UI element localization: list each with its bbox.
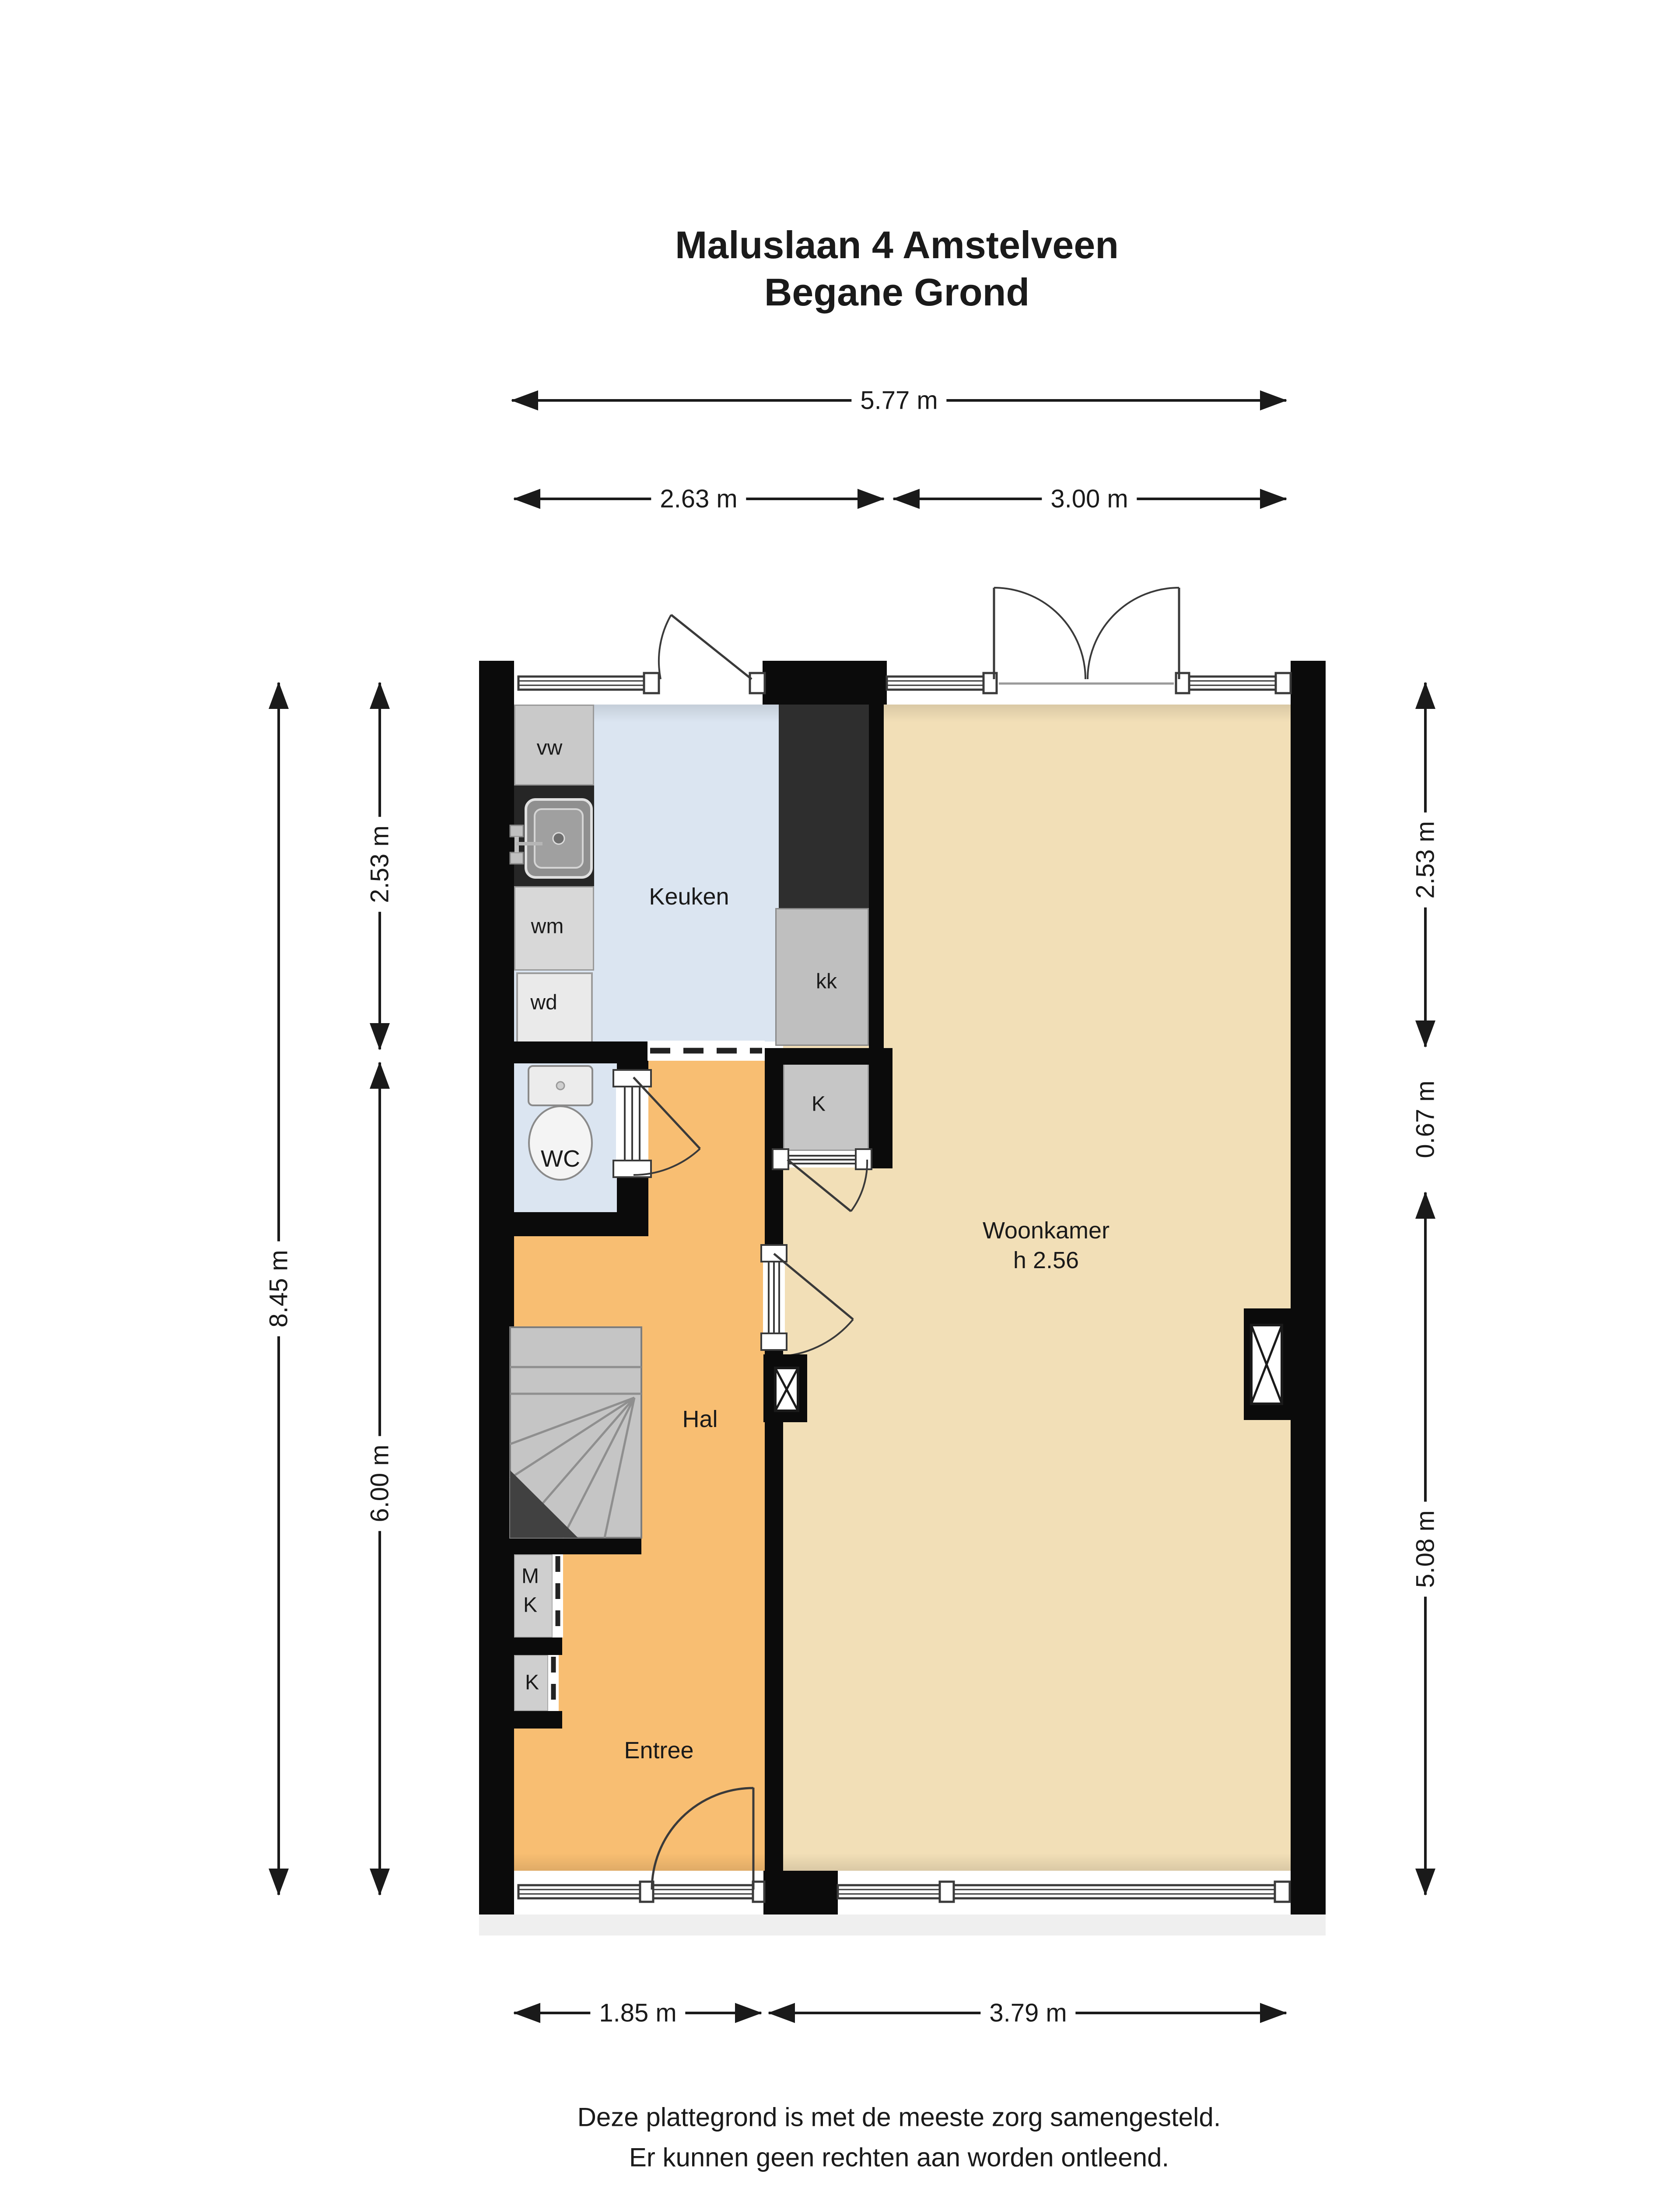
- wall-top-mid-pier: [763, 661, 887, 705]
- chimney-icon-mid: [763, 1354, 807, 1422]
- disclaimer-line1: Deze plattegrond is met de meeste zorg s…: [577, 2102, 1221, 2132]
- french-doors: [994, 588, 1179, 679]
- wall-bottom-mid-pier: [763, 1871, 838, 1914]
- wall-hal-living-a: [765, 1048, 783, 1245]
- dim-bottom-left: 1.85 m: [590, 1998, 685, 2029]
- dim-top-total: 5.77 m: [851, 385, 946, 416]
- floorplan-page: Maluslaan 4 Amstelveen Begane Grond: [0, 0, 1680, 2188]
- wall-k2-stub: [479, 1711, 562, 1729]
- wall-wc-right-top: [617, 1041, 648, 1070]
- hal-living-door: [761, 1245, 853, 1357]
- wall-kitchen-living: [869, 705, 884, 1048]
- dimension-lines: [279, 400, 1425, 2013]
- wall-stairs-stub: [479, 1538, 641, 1554]
- label-kk: kk: [816, 970, 837, 994]
- wall-mk-stub: [479, 1637, 562, 1655]
- label-mk-line1: M: [521, 1564, 539, 1588]
- disclaimer-line2: Er kunnen geen rechten aan worden ontlee…: [629, 2142, 1169, 2173]
- label-mk-line2: K: [523, 1593, 537, 1617]
- label-wc: WC: [541, 1145, 580, 1172]
- dim-right-middle: 0.67 m: [1410, 1072, 1441, 1167]
- dim-top-right: 3.00 m: [1042, 484, 1137, 515]
- sink-icon: [510, 799, 591, 877]
- wall-k-closet-right: [869, 1048, 892, 1168]
- label-hal: Hal: [682, 1406, 717, 1433]
- chimney-icon-right: [1244, 1308, 1291, 1420]
- dim-left-total: 8.45 m: [263, 1241, 294, 1336]
- dim-top-left: 2.63 m: [651, 484, 746, 515]
- label-woonkamer: Woonkamer: [983, 1217, 1109, 1244]
- front-door: [652, 1788, 753, 1890]
- label-woonkamer-height: h 2.56: [1013, 1247, 1079, 1274]
- label-k-small: K: [525, 1671, 539, 1695]
- windows-top: [518, 673, 1291, 693]
- dim-left-top: 2.53 m: [364, 817, 395, 912]
- label-wm: wm: [531, 915, 564, 939]
- open-passage-dashed: [647, 1041, 765, 1061]
- wall-hal-living-c: [765, 1422, 783, 1871]
- k-closet-door: [773, 1149, 871, 1211]
- walls: [479, 661, 1326, 1914]
- label-keuken: Keuken: [649, 883, 729, 910]
- stairs-icon: [510, 1327, 641, 1538]
- closet-dashed-fronts: [548, 1554, 563, 1711]
- label-entree: Entree: [624, 1737, 693, 1764]
- label-k-closet: K: [812, 1092, 826, 1116]
- label-wd: wd: [530, 991, 557, 1015]
- windows-bottom: [518, 1882, 1290, 1902]
- dim-right-bottom: 5.08 m: [1410, 1501, 1441, 1596]
- dim-right-top: 2.53 m: [1410, 812, 1441, 907]
- wall-right: [1291, 661, 1326, 1914]
- kitchen-door: [659, 615, 752, 679]
- wc-door: [613, 1070, 700, 1177]
- label-vw: vw: [537, 736, 563, 760]
- wall-wc-right-bottom: [617, 1177, 648, 1236]
- dim-bottom-right: 3.79 m: [980, 1998, 1075, 2029]
- dim-left-bottom: 6.00 m: [364, 1436, 395, 1531]
- plan-drop-shadow: [479, 1914, 1326, 1936]
